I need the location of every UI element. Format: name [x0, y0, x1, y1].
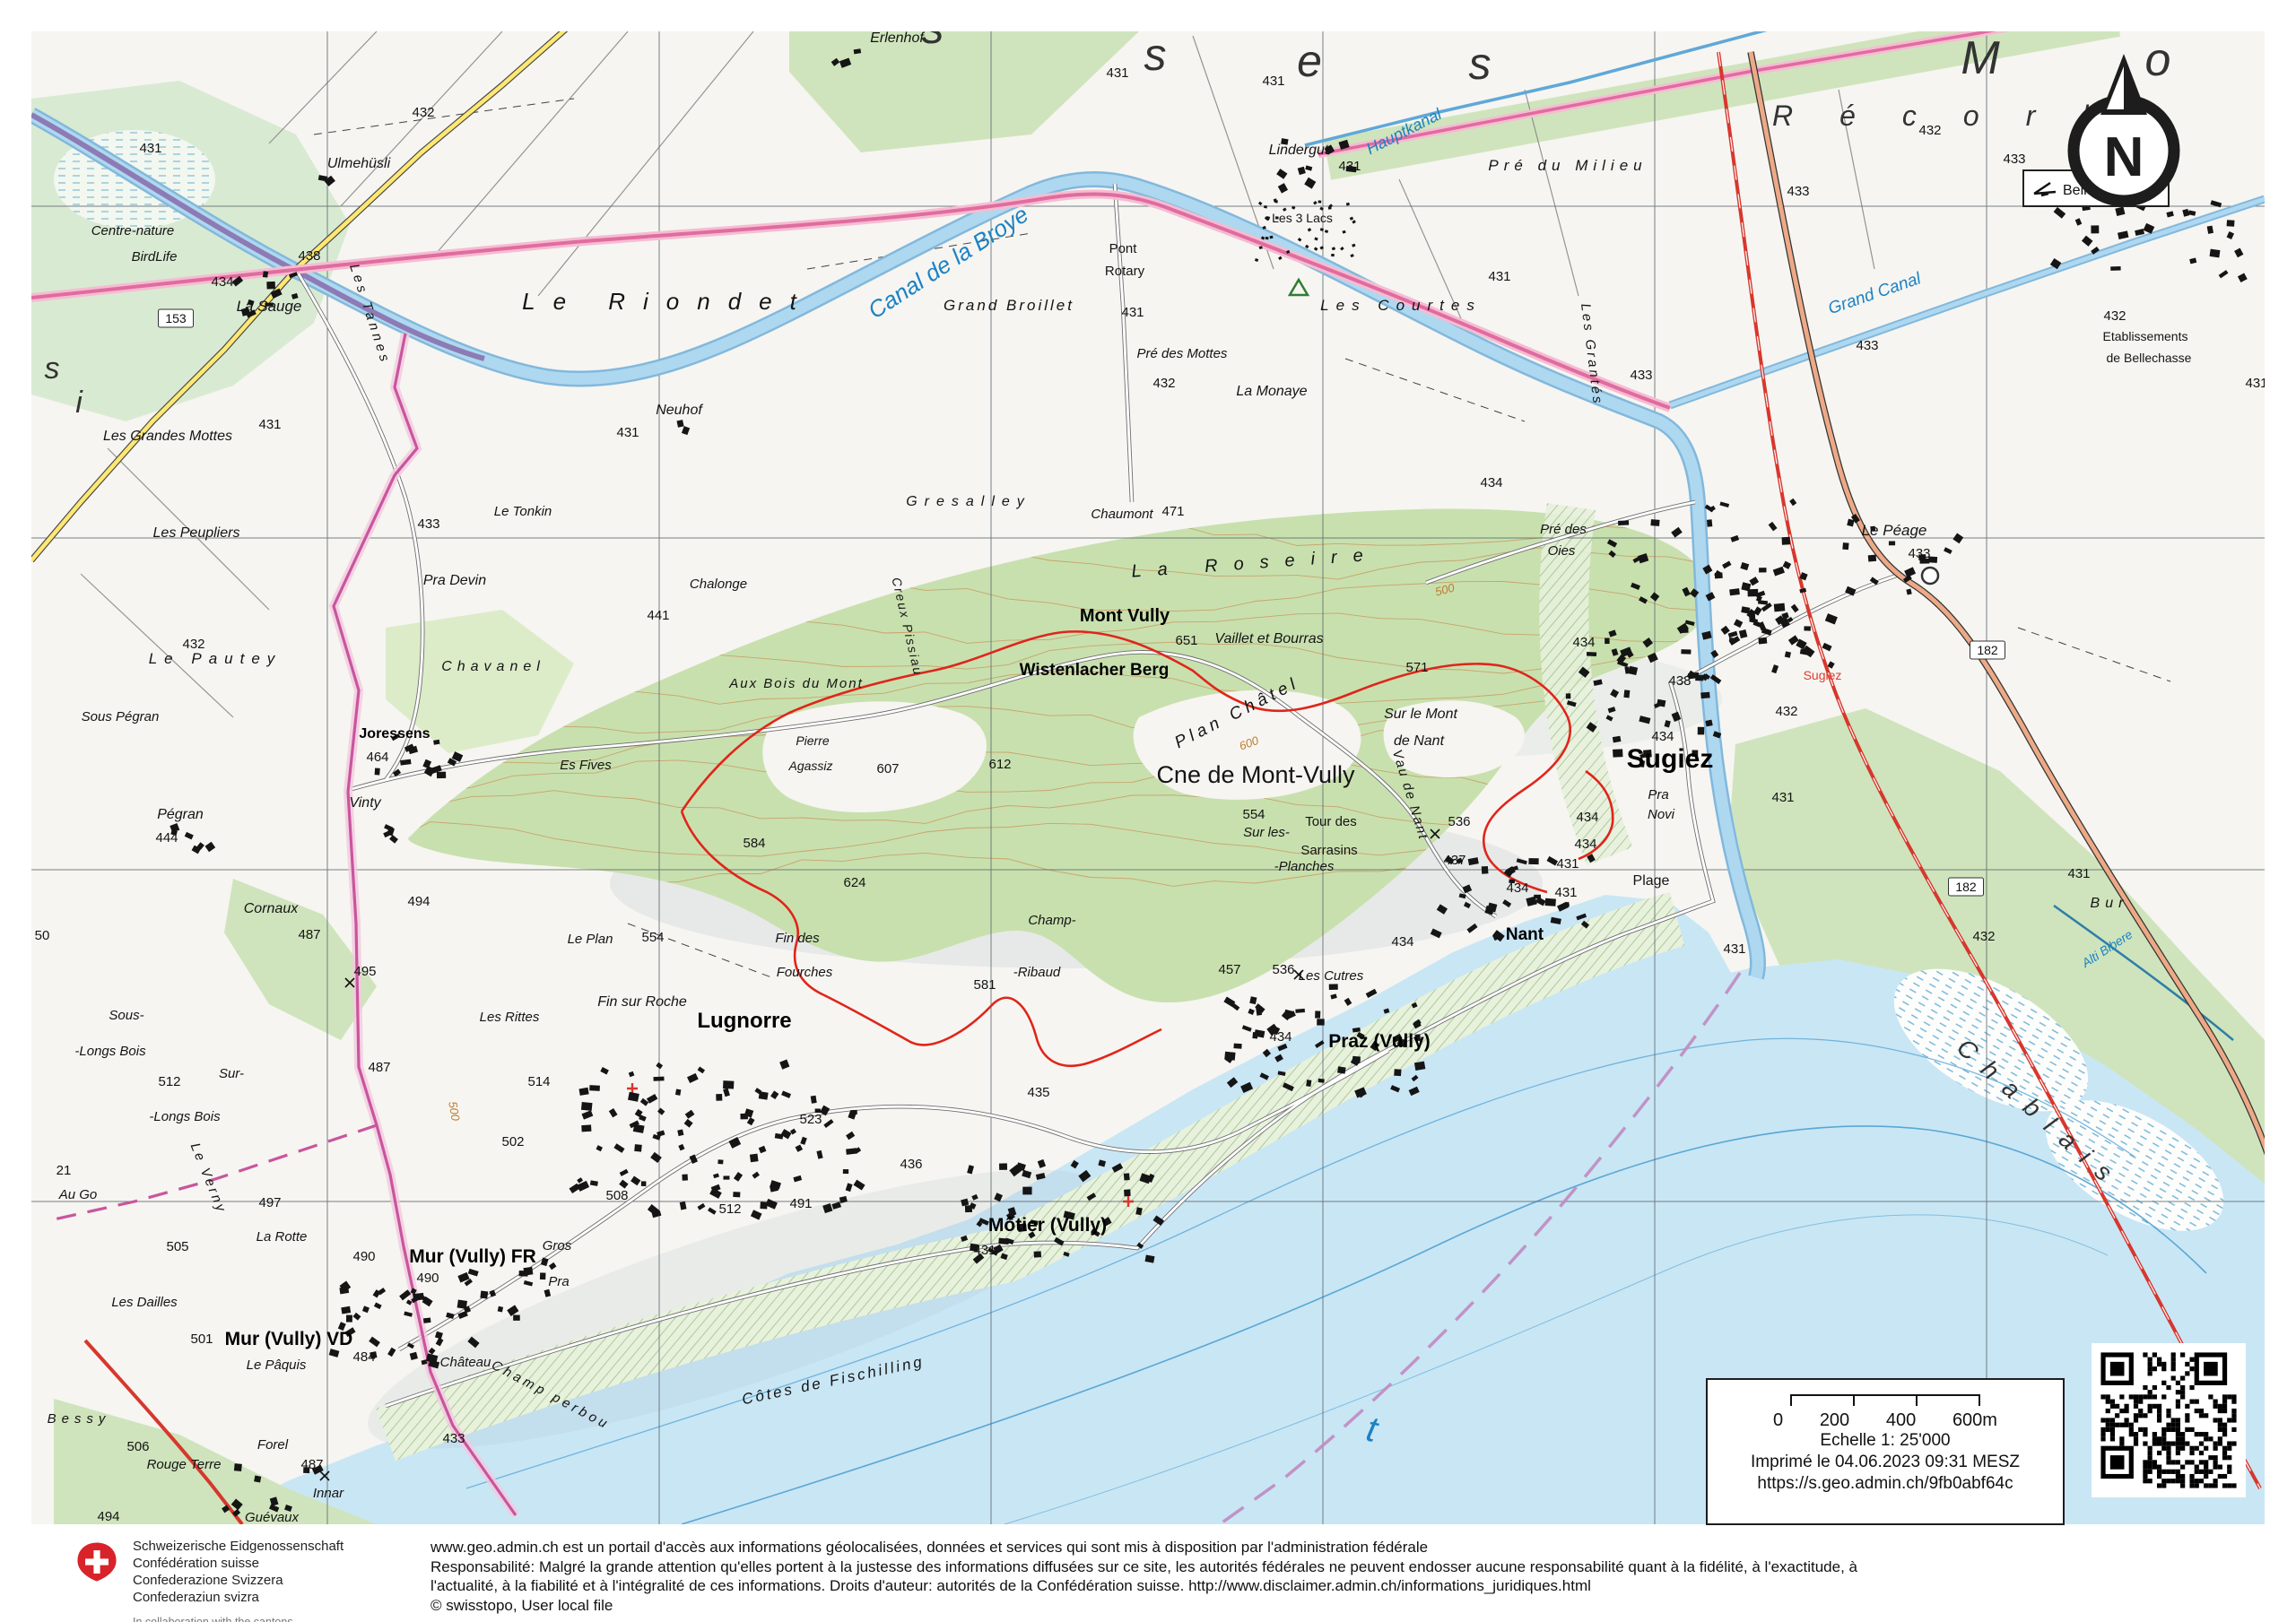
map-label: 431: [616, 425, 639, 440]
map-label: 431: [1771, 790, 1794, 805]
building: [1680, 628, 1689, 633]
map-label: Erlenhof: [870, 30, 925, 46]
short-url: https://s.geo.admin.ch/9fb0abf64c: [1708, 1473, 2063, 1495]
map-label: Wistenlacher Berg: [1020, 661, 1170, 680]
route-badge-label: 153: [165, 311, 187, 325]
map-label: Le Riondet: [522, 288, 814, 315]
map-label: Le Pâquis: [247, 1357, 307, 1373]
map-label: Vaillet et Bourras: [1214, 631, 1323, 646]
scale-tick: 200: [1820, 1410, 1849, 1430]
compass-label: N: [2104, 126, 2144, 188]
map-label: 433: [442, 1431, 465, 1446]
map-label: 651: [1175, 633, 1197, 648]
map-label: La Rotte: [257, 1229, 308, 1245]
building: [1889, 541, 1895, 545]
map-label: 491: [789, 1196, 812, 1211]
building: [999, 1163, 1007, 1170]
building: [1315, 1010, 1320, 1018]
map-label: 471: [1161, 504, 1184, 519]
building: [1306, 1080, 1311, 1087]
map-label: Bessy: [48, 1411, 111, 1427]
map-label: 431: [1262, 74, 1284, 89]
building: [682, 1175, 688, 1181]
building: [1587, 652, 1596, 656]
map-label: Pierre: [796, 733, 830, 748]
map-label: 487: [368, 1060, 390, 1075]
building: [1394, 1069, 1401, 1076]
building: [263, 271, 268, 277]
map-label: 436: [900, 1157, 922, 1172]
map-label: 437: [1443, 853, 1465, 868]
scale-bar: [1790, 1394, 1980, 1409]
map-label: -Ribaud: [1013, 965, 1061, 980]
building: [750, 1154, 759, 1163]
building: [851, 1110, 857, 1115]
building: [513, 1315, 520, 1321]
map-label: 434: [1506, 880, 1528, 896]
map-label: Pégran: [157, 807, 204, 822]
building: [266, 282, 275, 290]
building: [1482, 866, 1489, 874]
qr-code: [2092, 1343, 2246, 1497]
scale-tick: 0: [1773, 1410, 1783, 1430]
building: [1022, 1187, 1031, 1195]
map-label: -Longs Bois: [74, 1044, 146, 1059]
route-badge-label: 182: [1977, 643, 1998, 657]
scale-text: Echelle 1: 25'000: [1708, 1430, 2063, 1452]
map-label: Sugiez: [1627, 744, 1714, 774]
map-label: 433: [417, 516, 439, 532]
map-label: 431: [1554, 885, 1577, 900]
map-label: Centre-nature: [91, 223, 175, 239]
map-label: 431: [1723, 941, 1745, 957]
map-label: Les Cutres: [1299, 968, 1364, 984]
map-label: -Planches: [1274, 859, 1335, 874]
map-label: 502: [501, 1134, 524, 1149]
map-label: Pré du Milieu: [1488, 157, 1647, 174]
map-label: Sur les-: [1243, 825, 1290, 840]
map-label: 434: [1572, 635, 1595, 650]
portal-line: www.geo.admin.ch est un portail d'accès …: [430, 1538, 2206, 1557]
building: [1331, 254, 1335, 256]
map-label: Agassiz: [787, 759, 832, 773]
map-label: Les Rittes: [480, 1010, 540, 1025]
building: [1605, 638, 1610, 644]
map-label: BirdLife: [132, 249, 178, 265]
map-label: 490: [352, 1249, 375, 1264]
map-label: Le Pautey: [149, 650, 283, 667]
map-label: Pré des: [1540, 522, 1587, 537]
map-label: Pont: [1109, 241, 1138, 256]
map-label: La Sauge: [237, 298, 302, 315]
map-label: 431: [1338, 159, 1361, 174]
map-label: Le Tonkin: [494, 504, 552, 519]
map-label: 432: [1972, 929, 1995, 944]
building: [653, 1077, 664, 1081]
building: [733, 1192, 740, 1197]
map-label: Champ-: [1028, 913, 1075, 928]
map-label: 512: [718, 1201, 741, 1217]
map-label: 433: [1630, 368, 1652, 383]
building: [1318, 200, 1322, 203]
map-label: Mont Vully: [1080, 606, 1170, 626]
map-label: 432: [412, 105, 434, 120]
route-badge-label: 182: [1955, 880, 1977, 894]
building: [437, 772, 446, 779]
building: [1623, 690, 1630, 698]
map-label: -Longs Bois: [149, 1109, 221, 1124]
building: [1729, 588, 1740, 595]
map-label: Fin sur Roche: [597, 994, 687, 1010]
map-label: 508: [605, 1188, 628, 1203]
map-label: La Monaye: [1236, 384, 1307, 399]
building: [341, 1306, 351, 1314]
map-label: Les Courtes: [1320, 297, 1482, 314]
map-label: o: [2145, 34, 2171, 86]
map-label: 434: [1651, 729, 1674, 744]
building: [1804, 626, 1811, 630]
map-print-page: Bellech 431432Ulmehüsli438Centre-natureB…: [0, 0, 2296, 1622]
map-label: 571: [1405, 660, 1428, 675]
map-label: Fourches: [777, 965, 833, 980]
map-label: Pra Devin: [423, 573, 486, 588]
map-label: 431: [2245, 376, 2267, 391]
map-label: Sarrasins: [1300, 843, 1357, 858]
building: [480, 1291, 488, 1299]
map-label: Pra: [548, 1274, 569, 1289]
scale-box: 0 200 400 600m Echelle 1: 25'000 Imprimé…: [1706, 1378, 2065, 1525]
map-label: Sous-: [109, 1008, 143, 1023]
building: [1707, 519, 1712, 526]
map-label: 434: [1574, 837, 1596, 852]
map-label: Sur-: [219, 1066, 244, 1081]
print-date: Imprimé le 04.06.2023 09:31 MESZ: [1708, 1452, 2063, 1473]
map-label: Les Peupliers: [153, 525, 240, 541]
building: [965, 1205, 972, 1212]
map-label: 432: [1152, 376, 1175, 391]
building: [1729, 638, 1737, 642]
building: [254, 1476, 261, 1483]
map-label: Cne de Mont-Vully: [1156, 761, 1355, 788]
map-label: de Bellechasse: [2107, 351, 2192, 365]
building: [1034, 1251, 1041, 1257]
building: [723, 1175, 729, 1179]
confederation-wordmark: Schweizerische Eidgenossenschaft Confédé…: [133, 1538, 344, 1622]
map-label: 501: [190, 1331, 213, 1347]
copyright-line: l'actualité, à la fiabilité et à l'intég…: [430, 1576, 2206, 1596]
map-label: 433: [1856, 338, 1878, 353]
roundabout: [1922, 568, 1938, 584]
building: [1700, 692, 1709, 698]
building: [716, 1094, 722, 1101]
map-label: Innar: [313, 1486, 344, 1501]
disclaimer-text: www.geo.admin.ch est un portail d'accès …: [430, 1538, 2206, 1615]
map-label: 432: [2103, 308, 2126, 324]
building: [1528, 858, 1538, 864]
building: [2227, 220, 2235, 227]
map-label: 554: [641, 930, 664, 945]
map-label: 506: [126, 1439, 149, 1454]
building: [234, 1463, 242, 1471]
building: [1264, 205, 1267, 209]
map-label: 432: [1918, 123, 1941, 138]
building: [1782, 537, 1791, 545]
map-label: 464: [366, 750, 388, 765]
building: [1698, 727, 1705, 735]
building: [723, 1080, 734, 1089]
map-label: 512: [158, 1074, 180, 1089]
map-label: Le Plan: [568, 932, 613, 947]
map-label: 441: [647, 608, 669, 623]
map-label: 433: [1908, 546, 1930, 561]
map-label: Les Grandes Mottes: [103, 429, 232, 444]
building: [1252, 1032, 1257, 1038]
map-label: Ulmehüsli: [327, 156, 391, 171]
building: [846, 1148, 857, 1155]
map-label: Chavanel: [441, 659, 545, 674]
map-label: 514: [527, 1074, 550, 1089]
map-label: 434: [211, 274, 233, 290]
building: [1337, 1066, 1346, 1073]
map-label: 444: [155, 830, 178, 846]
map-label: 431: [973, 1243, 996, 1258]
building: [1124, 1189, 1131, 1196]
map-label: Fin des: [775, 931, 820, 946]
building: [1705, 720, 1712, 727]
building: [843, 1169, 848, 1174]
map-label: 433: [2003, 152, 2025, 167]
map-label: M: [1961, 32, 2000, 84]
map-label: Mur (Vully) VD: [225, 1329, 353, 1349]
map-label: 584: [743, 836, 765, 851]
map-label: 554: [1242, 807, 1265, 822]
building: [1842, 542, 1848, 550]
building: [641, 1181, 647, 1186]
map-label: Chaumont: [1091, 507, 1153, 522]
map-label: Cornaux: [244, 901, 299, 916]
building: [2110, 266, 2120, 271]
map-label: 438: [1668, 673, 1691, 689]
map-label: 612: [988, 757, 1011, 772]
scale-tick: 600m: [1952, 1410, 1997, 1430]
map-label: Sugiez: [1804, 668, 1842, 682]
map-label: Le Péage: [1862, 522, 1927, 539]
building: [1715, 572, 1723, 578]
map-label: 434: [1480, 475, 1502, 490]
map-label: Lugnorre: [697, 1009, 791, 1033]
building: [1759, 568, 1766, 572]
building: [1650, 519, 1659, 526]
map-label: Pré des Mottes: [1137, 346, 1228, 361]
map-label: Forel: [257, 1437, 289, 1453]
building: [1758, 638, 1767, 645]
map-label: s: [1469, 39, 1492, 89]
map-label: 431: [2067, 866, 2090, 881]
map-label: 457: [1218, 962, 1240, 977]
map-label: Bur: [2091, 896, 2129, 911]
map-label: 435: [1027, 1085, 1049, 1100]
map-label: 434: [1391, 934, 1413, 950]
map-label: Sous Pégran: [82, 709, 160, 724]
map-label: 581: [973, 977, 996, 993]
map-label: Guévaux: [245, 1510, 300, 1525]
footer: Schweizerische Eidgenossenschaft Confédé…: [0, 1532, 2296, 1622]
map-label: 607: [876, 761, 899, 776]
map-label: 434: [1269, 1029, 1291, 1045]
map-label: de Nant: [1394, 733, 1445, 749]
building: [519, 1271, 528, 1277]
building: [1318, 1079, 1325, 1083]
building: [1868, 555, 1876, 562]
swiss-flag-logo: [76, 1541, 117, 1587]
building: [1618, 520, 1629, 525]
map-label: Joressens: [359, 726, 430, 742]
map-label: Es Fives: [560, 758, 612, 773]
building: [717, 1159, 723, 1164]
map-label: 505: [166, 1239, 188, 1254]
map-label: Chalonge: [690, 577, 747, 592]
map-label: 484: [352, 1349, 375, 1365]
map-label: Château: [440, 1355, 491, 1370]
map-label: Les 3 Lacs: [1272, 211, 1333, 225]
building: [1233, 1044, 1241, 1049]
map-label: s: [45, 351, 60, 386]
map-label: 495: [353, 964, 376, 979]
responsibility-line: Responsabilité: Malgré la grande attenti…: [430, 1557, 2206, 1577]
building: [1681, 649, 1691, 655]
map-label: 494: [407, 894, 430, 909]
map-label: Plage: [1633, 873, 1670, 889]
map-label: Gros: [543, 1238, 572, 1253]
map-label: 431: [258, 417, 281, 432]
building: [540, 1272, 546, 1279]
building: [457, 1300, 467, 1309]
map-label: Rouge Terre: [147, 1457, 222, 1472]
building: [811, 1096, 817, 1104]
building: [375, 768, 380, 775]
map-label: 624: [843, 875, 865, 890]
map-label: Tour des: [1305, 814, 1357, 829]
map-label: Les Dailles: [111, 1295, 178, 1310]
map-label: 487: [300, 1457, 323, 1472]
map-label: 494: [97, 1509, 119, 1524]
attribution-line: © swisstopo, User local file: [430, 1596, 2206, 1616]
building: [2091, 225, 2099, 233]
map-label: Vinty: [349, 795, 381, 811]
map-label: 433: [1787, 184, 1809, 199]
building: [1329, 984, 1338, 990]
map-label: 431: [1121, 305, 1144, 320]
map-label: 432: [182, 637, 204, 652]
map-label: Lindergut: [1269, 143, 1329, 158]
map-label: Etablissements: [2103, 329, 2188, 343]
map-label: 21: [57, 1163, 72, 1178]
map-label: Au Go: [58, 1187, 98, 1202]
building: [675, 1089, 681, 1095]
map-label: Neuhof: [656, 403, 703, 418]
map-label: Oies: [1548, 543, 1576, 559]
map-label: Gresalley: [906, 494, 1031, 509]
building: [1124, 1173, 1130, 1180]
building: [760, 1201, 767, 1209]
map-label: Novi: [1648, 807, 1675, 822]
map-label: 536: [1272, 962, 1294, 977]
map-label: Nant: [1506, 925, 1544, 944]
map-label: 431: [1488, 269, 1510, 284]
map-label: 50: [35, 928, 50, 943]
map-label: s: [1144, 30, 1167, 80]
map-label: Praz (Vully): [1328, 1031, 1431, 1052]
map-label: Môtier (Vully): [988, 1215, 1107, 1236]
building: [1566, 693, 1571, 698]
map-label: 431: [1556, 856, 1578, 872]
building: [1317, 1019, 1325, 1025]
building: [423, 1317, 431, 1323]
map-label: 438: [298, 248, 320, 264]
map-label: 490: [416, 1271, 439, 1286]
building: [1414, 1062, 1425, 1071]
building: [1224, 1052, 1235, 1061]
map-label: 536: [1448, 814, 1470, 829]
map-label: 431: [1106, 65, 1128, 81]
map-label: 432: [1775, 704, 1797, 719]
building: [581, 1102, 593, 1111]
scale-tick: 400: [1886, 1410, 1916, 1430]
building: [2210, 249, 2221, 258]
map-label: Rotary: [1105, 264, 1145, 279]
map-label: Sur le Mont: [1384, 707, 1457, 722]
map-label: 487: [298, 927, 320, 942]
building: [634, 1144, 642, 1152]
map-label: Aux Bois du Mont: [728, 676, 864, 691]
map-label: Grand Broillet: [944, 297, 1074, 314]
building: [589, 1085, 600, 1091]
map-label: Mur (Vully) FR: [409, 1246, 536, 1267]
map-label: 434: [1576, 810, 1598, 825]
map-label: Pra: [1648, 787, 1668, 802]
map-label: 431: [139, 141, 161, 156]
building: [1774, 603, 1786, 612]
map-label: 523: [799, 1112, 822, 1127]
map-label: e: [1297, 36, 1322, 86]
building: [581, 1124, 591, 1132]
building: [1613, 749, 1622, 757]
building: [346, 1315, 352, 1323]
map-label: 497: [258, 1195, 281, 1210]
